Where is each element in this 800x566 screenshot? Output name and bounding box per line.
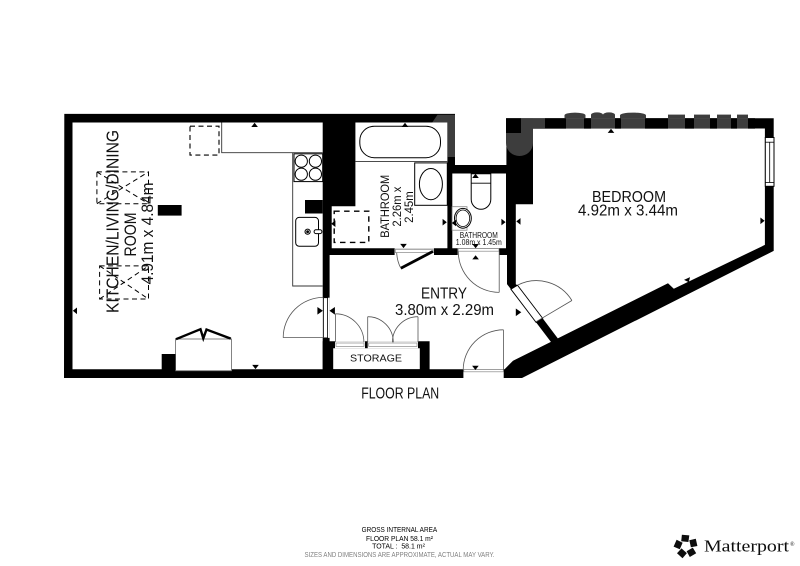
svg-text:STORAGE: STORAGE: [350, 354, 402, 365]
svg-text:GROSS INTERNAL AREA: GROSS INTERNAL AREA: [362, 525, 438, 534]
svg-text:ENTRY: ENTRY: [421, 286, 467, 303]
svg-text:SIZES AND DIMENSIONS ARE APPRO: SIZES AND DIMENSIONS ARE APPROXIMATE, AC…: [305, 550, 495, 559]
svg-text:3.80m x 2.29m: 3.80m x 2.29m: [395, 302, 494, 319]
svg-text:4.92m x 3.44m: 4.92m x 3.44m: [578, 203, 678, 220]
svg-text:4.91m x 4.84m: 4.91m x 4.84m: [138, 183, 157, 285]
svg-text:Matterport: Matterport: [704, 537, 789, 556]
svg-text:®: ®: [790, 541, 795, 548]
svg-text:1.08m x 1.45m: 1.08m x 1.45m: [456, 238, 502, 247]
svg-text:2.26m x: 2.26m x: [392, 186, 404, 226]
svg-text:2.45m: 2.45m: [404, 191, 416, 223]
svg-text:FLOOR PLAN: FLOOR PLAN: [361, 386, 439, 403]
svg-text:BATHROOM: BATHROOM: [380, 175, 392, 238]
svg-text:KITCHEN/LIVING/DINING: KITCHEN/LIVING/DINING: [103, 130, 123, 313]
